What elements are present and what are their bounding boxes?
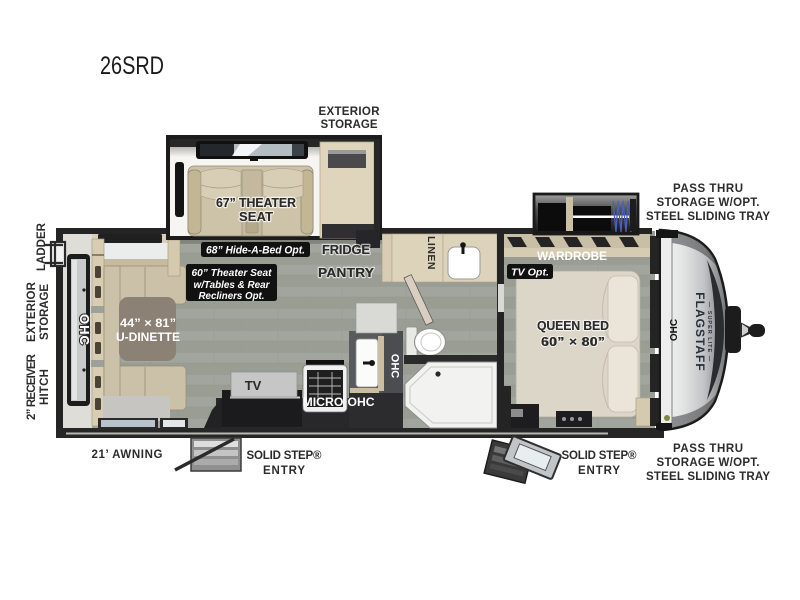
svg-text:FRIDGE: FRIDGE xyxy=(322,242,370,257)
svg-text:SOLID STEP®: SOLID STEP® xyxy=(562,450,638,462)
svg-text:PASS THRU: PASS THRU xyxy=(673,443,743,455)
svg-text:MICRO: MICRO xyxy=(303,397,344,409)
svg-text:— SUPER LITE —: — SUPER LITE — xyxy=(706,302,712,362)
svg-text:STORAGE: STORAGE xyxy=(321,119,378,131)
svg-text:OHC: OHC xyxy=(389,354,401,379)
svg-text:EXTERIOR: EXTERIOR xyxy=(26,281,38,342)
svg-text:26SRD: 26SRD xyxy=(100,52,164,80)
svg-text:U-DINETTE: U-DINETTE xyxy=(116,332,180,344)
svg-text:SOLID STEP®: SOLID STEP® xyxy=(247,450,323,462)
svg-text:Recliners Opt.: Recliners Opt. xyxy=(199,290,265,302)
svg-text:STORAGE W/OPT.: STORAGE W/OPT. xyxy=(657,457,760,469)
svg-text:44” × 81”: 44” × 81” xyxy=(120,318,176,330)
svg-text:68” Hide-A-Bed Opt.: 68” Hide-A-Bed Opt. xyxy=(206,245,305,257)
svg-text:STEEL SLIDING TRAY: STEEL SLIDING TRAY xyxy=(646,211,770,223)
svg-text:60” × 80”: 60” × 80” xyxy=(541,335,605,349)
svg-text:TV: TV xyxy=(245,378,262,393)
svg-text:60” Theater Seat: 60” Theater Seat xyxy=(192,267,272,279)
svg-text:PANTRY: PANTRY xyxy=(318,265,374,280)
svg-text:STEEL SLIDING TRAY: STEEL SLIDING TRAY xyxy=(646,471,770,483)
svg-text:FLAGSTAFF: FLAGSTAFF xyxy=(693,292,707,371)
svg-text:PASS THRU: PASS THRU xyxy=(673,183,743,195)
svg-text:EXTERIOR: EXTERIOR xyxy=(319,106,381,118)
svg-text:21’ AWNING: 21’ AWNING xyxy=(92,449,163,461)
svg-text:OHC: OHC xyxy=(669,319,680,341)
svg-text:QUEEN BED: QUEEN BED xyxy=(537,319,609,333)
svg-text:HITCH: HITCH xyxy=(39,369,51,405)
svg-text:2” RECEIVER: 2” RECEIVER xyxy=(26,353,38,420)
svg-text:OHC: OHC xyxy=(77,314,92,346)
svg-text:OHC: OHC xyxy=(348,397,375,409)
svg-text:WARDROBE: WARDROBE xyxy=(537,249,607,263)
svg-text:67” THEATER: 67” THEATER xyxy=(216,196,296,210)
svg-text:LINEN: LINEN xyxy=(425,236,437,270)
svg-text:ENTRY: ENTRY xyxy=(578,465,620,477)
svg-text:ENTRY: ENTRY xyxy=(263,465,305,477)
svg-text:TV Opt.: TV Opt. xyxy=(511,267,549,279)
svg-text:STORAGE W/OPT.: STORAGE W/OPT. xyxy=(657,197,760,209)
svg-text:STORAGE: STORAGE xyxy=(39,284,51,340)
svg-text:SEAT: SEAT xyxy=(239,210,273,224)
